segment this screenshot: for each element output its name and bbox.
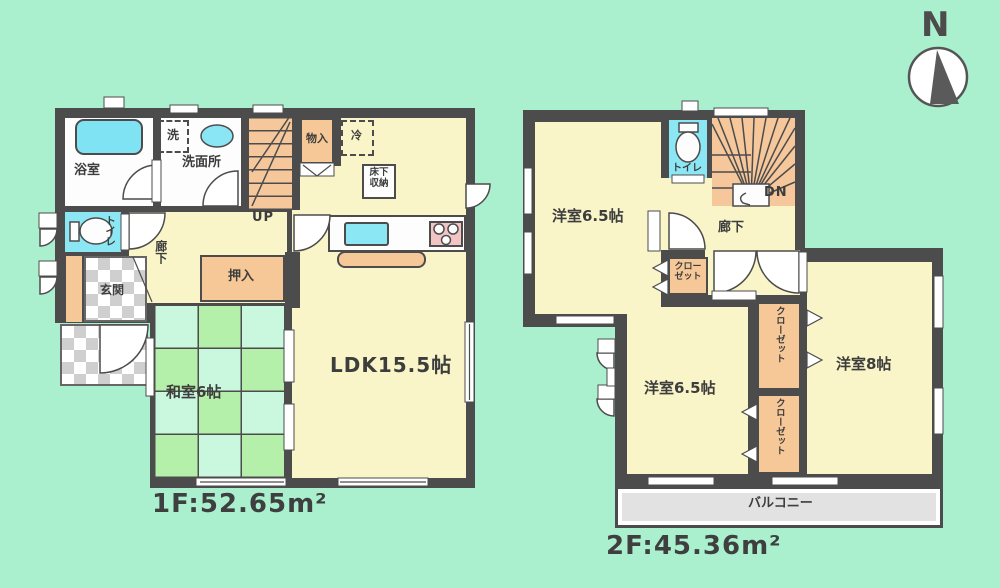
floor-plan-canvas: 浴室 洗面所 洗 トイレ 廊下 玄関 押入 物入 冷 床下収納 UP 和室6帖 … <box>0 0 1000 588</box>
closet-door-marker <box>653 260 668 276</box>
label-area-2f: 2F:45.36m² <box>606 532 782 562</box>
door-leaf <box>152 160 161 202</box>
window <box>39 213 57 228</box>
window <box>524 232 532 274</box>
door-leaf <box>712 291 756 300</box>
window <box>934 276 943 328</box>
door-leaf <box>648 211 660 251</box>
label-up: UP <box>252 211 274 226</box>
closet-door-marker <box>742 404 757 420</box>
window-casement-genkan <box>40 277 57 294</box>
door-front <box>100 325 148 373</box>
door-back <box>466 184 490 208</box>
label-closet-hall: クローゼット <box>671 262 705 283</box>
window <box>524 168 532 214</box>
window <box>253 105 283 113</box>
window <box>648 477 714 485</box>
label-hallway1: 廊下 <box>153 240 167 264</box>
window <box>772 477 838 485</box>
window <box>39 261 57 276</box>
label-west-left: 洋室6.5帖 <box>644 380 716 397</box>
label-ldk: LDK15.5帖 <box>330 354 452 377</box>
label-closet-upper: クローゼット <box>773 306 784 363</box>
label-closet-lower: クローゼット <box>773 398 784 455</box>
monoire-door-strip <box>300 163 334 176</box>
label-west-top: 洋室6.5帖 <box>552 208 624 225</box>
label-hallway2: 廊下 <box>718 221 744 236</box>
sliding-door <box>284 330 294 382</box>
washbasin-icon <box>201 125 233 147</box>
window <box>607 368 615 386</box>
door-west-right <box>757 251 799 293</box>
door-leaf <box>121 214 129 250</box>
stove-burners-icon <box>434 224 458 245</box>
window <box>104 97 124 108</box>
label-laundry: 洗 <box>167 129 179 143</box>
window <box>598 385 615 399</box>
north-label: N <box>921 6 949 45</box>
closet-door-marker <box>807 352 822 368</box>
compass-icon <box>909 48 967 106</box>
label-bath: 浴室 <box>74 164 100 179</box>
label-dn: DN <box>764 186 788 201</box>
window <box>556 316 614 324</box>
label-toilet2: トイレ <box>672 163 702 175</box>
window <box>598 339 615 353</box>
toilet2-icon <box>676 123 700 162</box>
label-area-1f: 1F:52.65m² <box>152 490 328 520</box>
door-leaf <box>672 175 704 183</box>
sliding-door <box>284 404 294 450</box>
door-leaf <box>799 252 807 292</box>
window <box>146 338 154 396</box>
closet-door-marker <box>742 446 757 462</box>
genkan-step-line <box>133 257 152 302</box>
window <box>714 108 768 116</box>
window-casement-2f-b <box>597 399 614 416</box>
label-balcony: バルコニー <box>748 497 813 512</box>
label-floor-storage: 床下収納 <box>365 168 393 190</box>
door-washroom <box>203 171 238 206</box>
label-oshiire: 押入 <box>228 270 254 285</box>
label-refrigerator: 冷 <box>351 130 362 143</box>
fixtures-overlay <box>0 0 1000 588</box>
label-monoire: 物入 <box>306 133 328 146</box>
bathtub-icon <box>76 120 142 154</box>
label-washroom: 洗面所 <box>182 156 221 171</box>
window-casement-toilet <box>40 229 57 246</box>
window <box>170 105 198 113</box>
label-japanese-room: 和室6帖 <box>166 384 221 401</box>
closet-door-marker <box>807 310 822 326</box>
door-west-left <box>714 251 756 293</box>
closet-door-marker <box>653 279 668 295</box>
window <box>682 101 698 111</box>
label-toilet1: トイレ <box>104 215 116 247</box>
window <box>934 388 943 434</box>
label-entrance: 玄関 <box>100 284 124 298</box>
label-west-right: 洋室8帖 <box>836 356 891 373</box>
door-ldk <box>294 215 330 251</box>
door-west-top <box>669 213 705 249</box>
window-casement-2f-a <box>597 353 614 370</box>
